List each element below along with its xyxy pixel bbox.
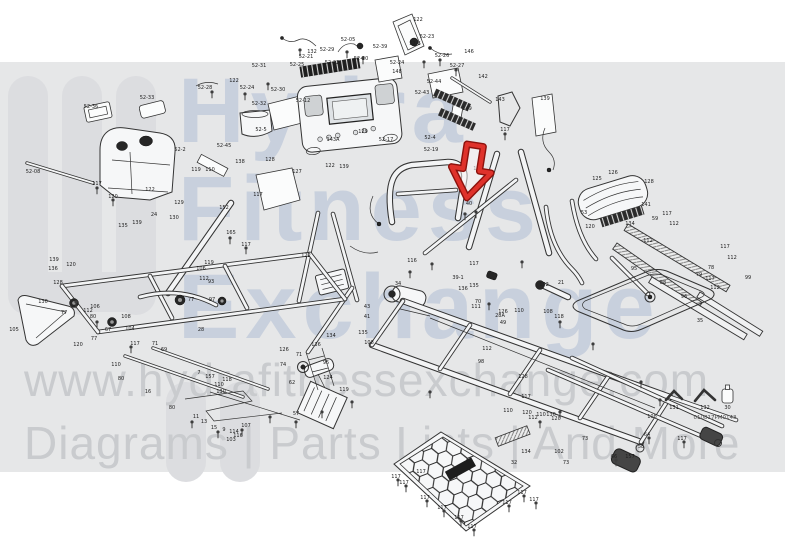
part-callout-117: 117 bbox=[241, 242, 251, 248]
part-callout-108: 108 bbox=[121, 314, 131, 320]
part-callout-34: 34 bbox=[395, 281, 401, 287]
part-callout-120: 120 bbox=[73, 342, 83, 348]
part-callout-52-26: 52-26 bbox=[435, 53, 450, 59]
part-callout-62: 62 bbox=[289, 380, 295, 386]
part-callout-136: 136 bbox=[311, 342, 321, 348]
part-callout-103: 103 bbox=[226, 437, 236, 443]
part-callout-52-12: 52-12 bbox=[296, 98, 311, 104]
part-callout-80: 80 bbox=[118, 376, 124, 382]
part-callout-117: 117 bbox=[253, 192, 263, 198]
part-callout-15: 15 bbox=[211, 425, 217, 431]
part-callout-67: 67 bbox=[105, 327, 111, 333]
part-callout-13: 13 bbox=[201, 419, 207, 425]
part-callout-135: 135 bbox=[358, 330, 368, 336]
part-callout-106: 106 bbox=[90, 304, 100, 310]
part-callout-52-27: 52-27 bbox=[450, 63, 465, 69]
part-callout-110: 110 bbox=[214, 382, 224, 388]
part-callout-128: 128 bbox=[53, 280, 63, 286]
part-callout-142: 142 bbox=[478, 74, 488, 80]
part-callout-88: 88 bbox=[660, 280, 666, 286]
part-callout-52-23: 52-23 bbox=[420, 34, 435, 40]
part-callout-110: 110 bbox=[514, 308, 524, 314]
part-callout-52-2: 52-2 bbox=[174, 147, 185, 153]
part-callout-148: 148 bbox=[392, 69, 402, 75]
exploded-diagram: Hydra Fitness Exchange www.hydrafitnesse… bbox=[0, 0, 785, 538]
part-callout-124: 124 bbox=[323, 375, 333, 381]
part-callout-128: 128 bbox=[265, 157, 275, 163]
part-callout-146: 146 bbox=[464, 49, 474, 55]
part-callout-78: 78 bbox=[708, 265, 714, 271]
part-callout-52-22: 52-22 bbox=[325, 60, 340, 66]
part-callout-52-05: 52-05 bbox=[341, 37, 356, 43]
part-callout-139: 139 bbox=[49, 257, 59, 263]
part-callout-52-30: 52-30 bbox=[271, 87, 286, 93]
part-callout-143: 143 bbox=[495, 97, 505, 103]
part-callout-117: 117 bbox=[130, 341, 140, 347]
part-callout-24: 24 bbox=[151, 212, 157, 218]
part-callout-120: 120 bbox=[551, 416, 561, 422]
part-callout-98: 98 bbox=[478, 359, 484, 365]
part-callout-58: 58 bbox=[638, 444, 644, 450]
part-callout-134: 134 bbox=[625, 221, 635, 227]
part-callout-28: 28 bbox=[198, 327, 204, 333]
part-callout-117: 117 bbox=[720, 244, 730, 250]
part-callout-74: 74 bbox=[280, 362, 286, 368]
part-callout-122: 122 bbox=[325, 163, 335, 169]
part-callout-105: 105 bbox=[9, 327, 19, 333]
part-callout-157: 157 bbox=[625, 454, 635, 460]
part-callout-52-25: 52-25 bbox=[290, 62, 305, 68]
part-callout-138: 138 bbox=[235, 159, 245, 165]
part-callout-102: 102 bbox=[554, 449, 564, 455]
part-callout-108: 108 bbox=[543, 309, 553, 315]
part-callout-139: 139 bbox=[540, 96, 550, 102]
part-callout-99: 99 bbox=[745, 275, 751, 281]
tool-label: 30 bbox=[724, 405, 730, 411]
part-callout-11: 11 bbox=[193, 414, 199, 420]
part-callout-125: 125 bbox=[592, 176, 602, 182]
part-callout-95: 95 bbox=[631, 266, 637, 272]
part-callout-152: 152 bbox=[539, 282, 549, 288]
part-callout-66: 66 bbox=[611, 454, 617, 460]
part-callout-35: 35 bbox=[697, 318, 703, 324]
part-callout-117: 117 bbox=[677, 436, 687, 442]
part-callout-52-21: 52-21 bbox=[299, 54, 314, 60]
part-callout-112: 112 bbox=[643, 238, 653, 244]
part-callout-120: 120 bbox=[522, 410, 532, 416]
part-callout-118: 118 bbox=[554, 314, 564, 320]
part-callout-143A: 143A bbox=[327, 137, 341, 143]
part-callout-16: 16 bbox=[145, 389, 151, 395]
part-callout-122: 122 bbox=[301, 253, 311, 259]
part-callout-157: 157 bbox=[205, 374, 215, 380]
part-callout-129: 129 bbox=[358, 129, 368, 135]
part-callout-71: 71 bbox=[152, 341, 158, 347]
part-callout-52-20: 52-20 bbox=[354, 56, 369, 62]
part-callout-117: 117 bbox=[399, 480, 409, 486]
part-callout-52-6: 52-6 bbox=[409, 41, 420, 47]
part-callout-41: 41 bbox=[364, 314, 370, 320]
part-callout-52-4: 52-4 bbox=[424, 135, 435, 141]
part-callout-49: 49 bbox=[500, 320, 506, 326]
part-callout-120: 120 bbox=[585, 224, 595, 230]
part-callout-32: 32 bbox=[511, 460, 517, 466]
part-callout-112: 112 bbox=[710, 285, 720, 291]
sensor-arm bbox=[338, 44, 360, 52]
part-callout-136: 136 bbox=[458, 286, 468, 292]
part-callout-117: 117 bbox=[467, 524, 477, 530]
part-callout-128: 128 bbox=[644, 179, 654, 185]
part-callout-141: 141 bbox=[641, 202, 651, 208]
part-callout-139: 139 bbox=[339, 164, 349, 170]
part-callout-110: 110 bbox=[205, 167, 215, 173]
part-callout-79: 79 bbox=[696, 272, 702, 278]
part-callout-112: 112 bbox=[199, 276, 209, 282]
part-callout-108: 108 bbox=[364, 340, 374, 346]
part-callout-117: 117 bbox=[500, 127, 510, 133]
motor-hood-left bbox=[100, 128, 175, 200]
part-callout-108: 108 bbox=[647, 414, 657, 420]
part-callout-128: 128 bbox=[518, 374, 528, 380]
part-callout-134: 134 bbox=[326, 333, 336, 339]
part-callout-7: 7 bbox=[197, 370, 200, 376]
part-callout-139: 139 bbox=[132, 220, 142, 226]
part-callout-112: 112 bbox=[727, 255, 737, 261]
part-callout-52-17: 52-17 bbox=[379, 137, 394, 143]
part-callout-135: 135 bbox=[469, 283, 479, 289]
part-callout-71: 71 bbox=[296, 352, 302, 358]
part-callout-117: 117 bbox=[705, 276, 715, 282]
part-callout-120: 120 bbox=[108, 194, 118, 200]
part-callout-126: 126 bbox=[279, 347, 289, 353]
tool-label: 132 bbox=[700, 405, 710, 411]
part-callout-130: 130 bbox=[38, 299, 48, 305]
part-callout-40: 40 bbox=[466, 201, 472, 207]
part-callout-52-36: 52-36 bbox=[84, 104, 99, 110]
part-callout-117: 117 bbox=[502, 500, 512, 506]
part-callout-57: 57 bbox=[293, 411, 299, 417]
part-callout-52-29: 52-29 bbox=[320, 47, 335, 53]
part-callout-95: 95 bbox=[323, 360, 329, 366]
part-callout-43: 43 bbox=[364, 304, 370, 310]
part-callout-52-44: 52-44 bbox=[427, 79, 442, 85]
part-callout-52-33: 52-33 bbox=[140, 95, 155, 101]
part-callout-73: 73 bbox=[563, 460, 569, 466]
part-callout-9: 9 bbox=[222, 427, 225, 433]
drawing-code: 010817PM0143 bbox=[693, 415, 737, 421]
part-callout-119: 119 bbox=[204, 260, 214, 266]
part-callout-134: 134 bbox=[521, 449, 531, 455]
part-callout-80: 80 bbox=[169, 405, 175, 411]
part-callout-122: 122 bbox=[229, 78, 239, 84]
part-callout-126: 126 bbox=[608, 170, 618, 176]
part-callout-129: 129 bbox=[174, 200, 184, 206]
part-callout-130: 130 bbox=[216, 389, 226, 395]
part-callout-52-24: 52-24 bbox=[240, 85, 255, 91]
part-callout-52-24: 52-24 bbox=[390, 60, 405, 66]
part-callout-112: 112 bbox=[482, 346, 492, 352]
part-callout-52-31: 52-31 bbox=[252, 63, 267, 69]
part-callout-110: 110 bbox=[111, 362, 121, 368]
part-callout-69: 69 bbox=[161, 347, 167, 353]
part-callout-96: 96 bbox=[681, 294, 687, 300]
part-callout-117: 117 bbox=[437, 505, 447, 511]
part-callout-116: 116 bbox=[407, 258, 417, 264]
part-callout-126: 126 bbox=[498, 309, 508, 315]
part-callout-111: 111 bbox=[471, 304, 481, 310]
part-callout-149: 149 bbox=[462, 106, 472, 112]
part-callout-130: 130 bbox=[169, 215, 179, 221]
part-callout-136: 136 bbox=[48, 266, 58, 272]
part-callout-52-45: 52-45 bbox=[217, 143, 232, 149]
part-callout-117: 117 bbox=[92, 181, 102, 187]
part-callout-64: 64 bbox=[644, 432, 650, 438]
part-callout-80: 80 bbox=[90, 314, 96, 320]
part-callout-112: 112 bbox=[669, 221, 679, 227]
part-callout-52-19: 52-19 bbox=[424, 147, 439, 153]
part-callout-117: 117 bbox=[420, 495, 430, 501]
part-callout-21: 21 bbox=[558, 280, 564, 286]
part-callout-59: 59 bbox=[652, 216, 658, 222]
part-callout-97: 97 bbox=[209, 297, 215, 303]
part-callout-52-39: 52-39 bbox=[373, 44, 388, 50]
part-callout-106: 106 bbox=[196, 266, 206, 272]
part-callout-120: 120 bbox=[66, 262, 76, 268]
part-callout-117: 117 bbox=[517, 490, 527, 496]
parts-diagram-page: Hydra Fitness Exchange www.hydrafitnesse… bbox=[0, 0, 785, 538]
part-callout-104: 104 bbox=[125, 326, 135, 332]
part-callout-117: 117 bbox=[469, 261, 479, 267]
part-callout-117: 117 bbox=[416, 469, 426, 475]
part-callout-77: 77 bbox=[188, 297, 194, 303]
part-callout-117: 117 bbox=[521, 394, 531, 400]
part-callout-77: 77 bbox=[91, 336, 97, 342]
part-callout-117: 117 bbox=[529, 497, 539, 503]
part-callout-119: 119 bbox=[339, 387, 349, 393]
part-callout-110: 110 bbox=[503, 408, 513, 414]
part-callout-52-28: 52-28 bbox=[198, 85, 213, 91]
part-callout-39-1: 39-1 bbox=[452, 275, 463, 281]
part-callout-117: 117 bbox=[454, 515, 464, 521]
part-callout-52-43: 52-43 bbox=[415, 90, 430, 96]
tool-label: 131 bbox=[669, 405, 679, 411]
part-callout-135: 135 bbox=[118, 223, 128, 229]
part-callout-52-08: 52-08 bbox=[26, 169, 41, 175]
part-callout-117: 117 bbox=[662, 211, 672, 217]
console bbox=[297, 77, 404, 156]
part-callout-122: 122 bbox=[413, 17, 423, 23]
part-callout-119: 119 bbox=[191, 167, 201, 173]
part-callout-165: 165 bbox=[226, 230, 236, 236]
part-callout-73: 73 bbox=[582, 436, 588, 442]
part-callout-52-32: 52-32 bbox=[252, 101, 267, 107]
part-callout-107: 107 bbox=[241, 423, 251, 429]
part-callout-53: 53 bbox=[581, 210, 587, 216]
part-callout-152: 152 bbox=[219, 205, 229, 211]
part-callout-127: 127 bbox=[292, 169, 302, 175]
part-callout-52-5: 52-5 bbox=[255, 127, 266, 133]
part-callout-122: 122 bbox=[145, 187, 155, 193]
part-callout-77: 77 bbox=[61, 310, 67, 316]
